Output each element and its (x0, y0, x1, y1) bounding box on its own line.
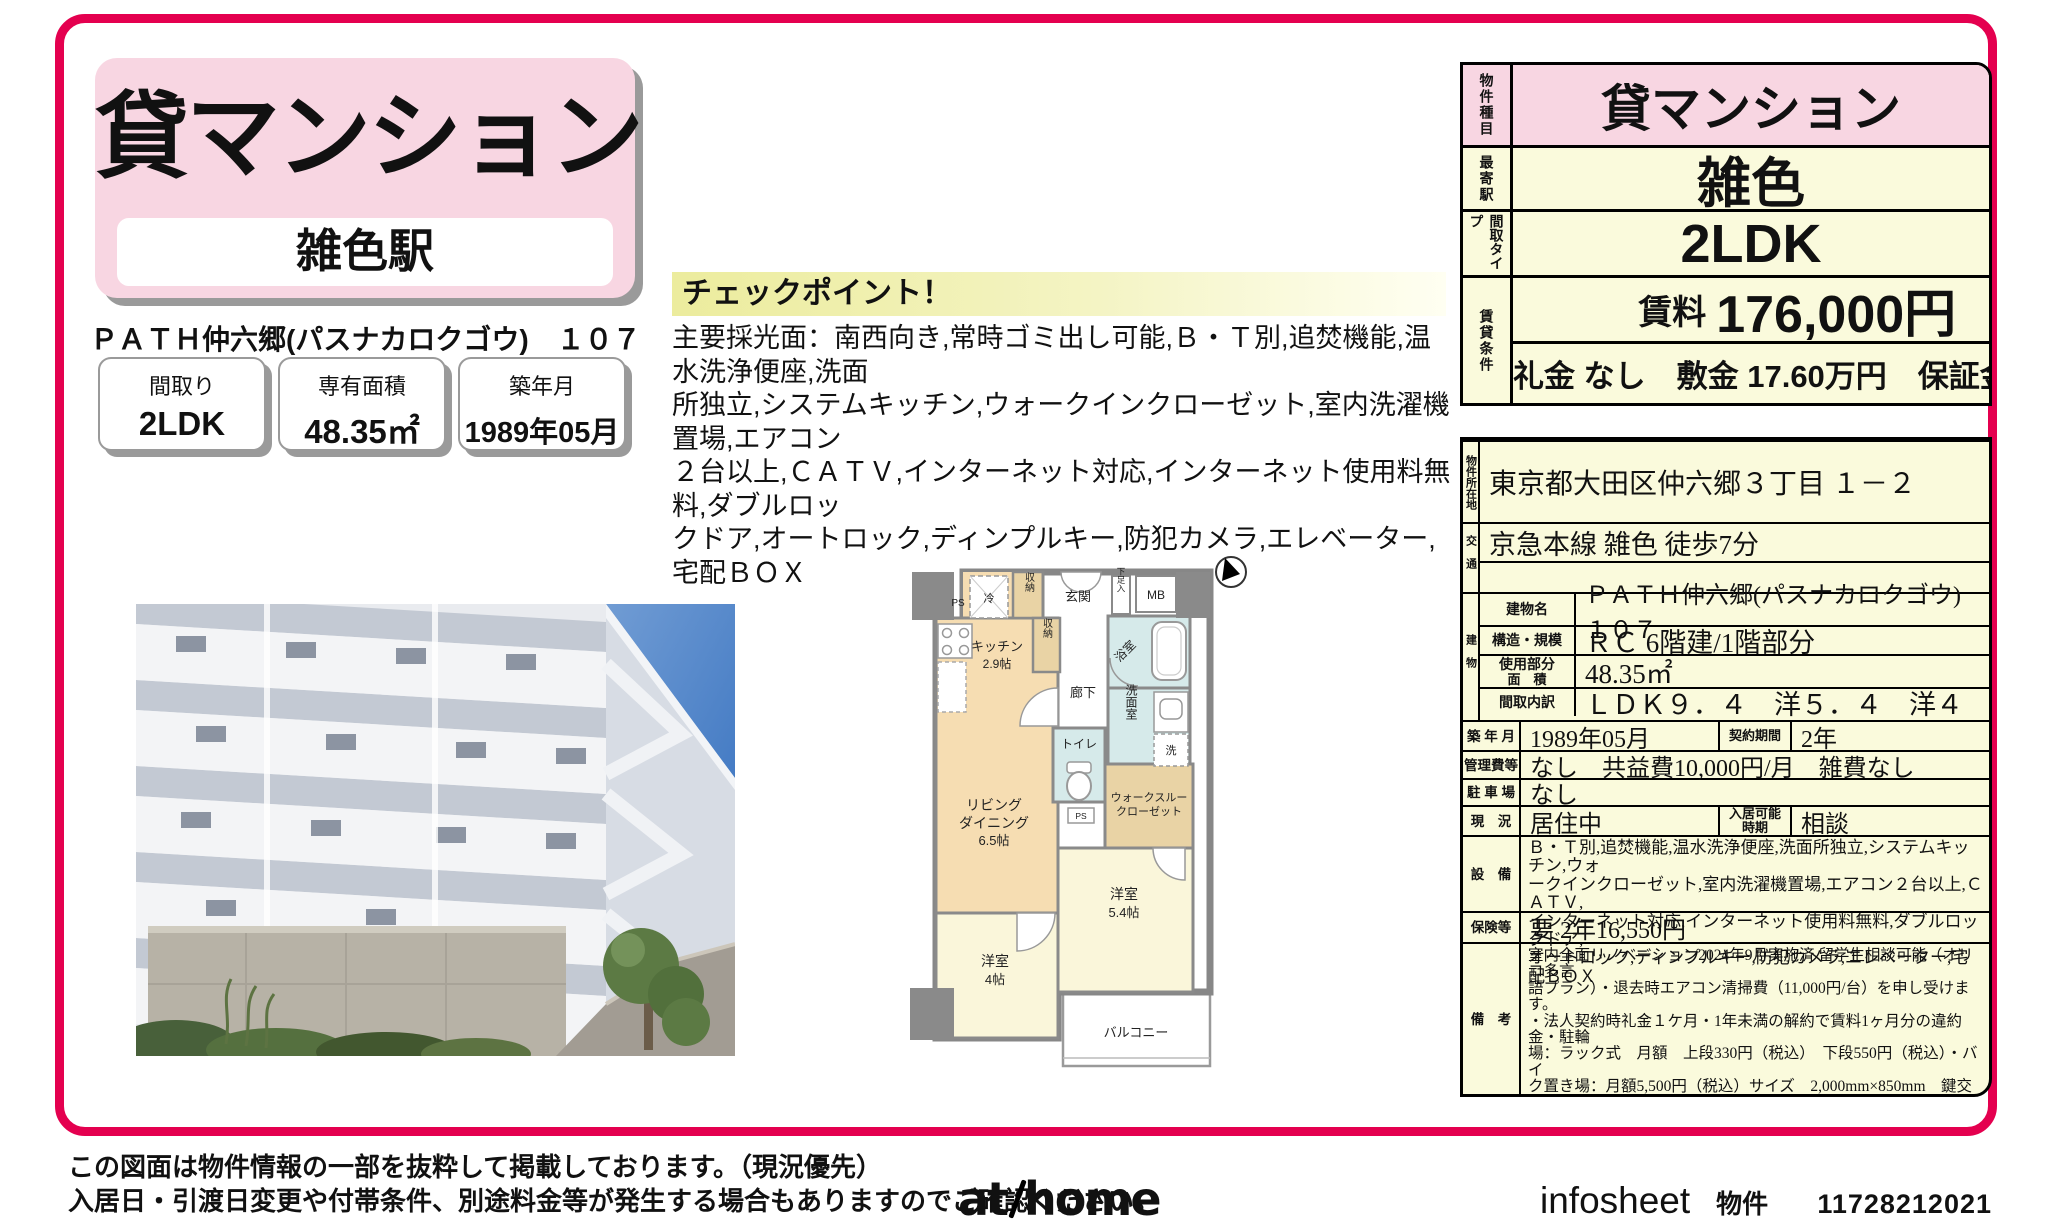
entrance-label: 玄関 (1065, 589, 1091, 604)
status-value: 居住中 (1521, 807, 1718, 835)
row-insurance: 保険等 要 2年16,550円 (1463, 911, 1989, 942)
category-title: 貸マンション (95, 58, 635, 216)
parking-value: なし (1521, 780, 1989, 805)
summary-value: 48.35㎡ (280, 405, 444, 453)
rent-terms: 礼金 なし 敷金 17.60万円 保証金 なし (1513, 344, 1992, 403)
notes-value: 室内全面リノベーション2024年9月実施済 留学生相談可能（オリコ多言 語プラン… (1521, 944, 1989, 1094)
spec-row-layout: 間取タイプ 2LDK (1463, 209, 1989, 275)
access-line-1: 京急本線 雑色 徒歩7分 (1480, 524, 1989, 563)
rent-amount: 176,000円 (1716, 272, 1956, 347)
address-value: 東京都大田区仲六郷３丁目 １－２ (1480, 442, 1989, 522)
summary-box-built: 築年月 1989年05月 (458, 357, 626, 451)
shoe-box-label: 下足入 (1116, 567, 1126, 593)
structure-value: ＲＣ 6階建/1階部分 (1576, 627, 1989, 654)
building-photo (136, 604, 735, 1056)
property-name-line: ＰＡＴＨ仲六郷(パスナカロクゴウ) １０７ (90, 318, 640, 358)
room-b-size-label: 4帖 (985, 972, 1005, 987)
balcony: バルコニー (1063, 992, 1210, 1066)
spec-row-category: 物件種目 貸マンション (1463, 65, 1989, 145)
insurance-label: 保険等 (1463, 913, 1521, 942)
movein-label: 入居可能 時期 (1718, 807, 1792, 835)
room-b-label: 洋室 (981, 953, 1009, 969)
summary-value: 1989年05月 (460, 409, 624, 451)
movein-value: 相談 (1792, 807, 1989, 835)
ps-bottom-label: PS (1075, 811, 1087, 821)
contract-value: 2年 (1792, 722, 1989, 750)
rent-line: 賃料 176,000円 (1513, 278, 1992, 344)
structure-label: 構造・規模 (1480, 627, 1576, 654)
ps-top-label: PS (951, 598, 965, 609)
row-equipment: 設 備 Ｂ・Ｔ別,追焚機能,温水洗浄便座,洗面所独立,システムキッチン,ウォ ー… (1463, 835, 1989, 911)
spec-table: 物件種目 貸マンション 最寄駅 雑色 間取タイプ 2LDK 賃貸条件 賃料 17… (1460, 62, 1992, 406)
station-name: 雑色駅 (117, 218, 613, 284)
contract-label: 契約期間 (1718, 722, 1792, 750)
living-size-label: 6.5帖 (978, 833, 1009, 848)
summary-label: 専有面積 (280, 369, 444, 401)
property-number-label: 物件番号 (1716, 1184, 1791, 1222)
mgmt-label: 管理費等 (1463, 752, 1521, 778)
toilet-icon (1067, 762, 1091, 800)
balcony-label: バルコニー (1104, 1025, 1169, 1040)
room-a-size-label: 5.4帖 (1108, 905, 1139, 920)
title-card: 貸マンション 雑色駅 (95, 58, 635, 298)
summary-value: 2LDK (100, 405, 264, 443)
kitchen-size-label: 2.9帖 (983, 656, 1012, 671)
living-label-1: リビング (966, 797, 1022, 813)
row-building: 建物 建物名 ＰＡＴＨ仲六郷(パスナカロクゴウ) １０７ 構造・規模 ＲＣ 6階… (1463, 592, 1989, 720)
summary-label: 築年月 (460, 369, 624, 401)
logo-at-text: at (958, 1172, 1007, 1222)
building-label: 建物 (1463, 594, 1480, 720)
closet-mid-label: 収納 (1041, 618, 1053, 639)
washer-label: 洗 (1166, 744, 1177, 757)
toilet-label: トイレ (1061, 737, 1097, 751)
checkpoint-header: チェックポイント！ (672, 272, 1446, 316)
kitchen-label: キッチン (971, 639, 1023, 654)
madori-label: 間取内訳 (1480, 689, 1576, 716)
infosheet-label: infosheet (1540, 1180, 1690, 1222)
fridge-label: 冷 (984, 592, 995, 605)
equipment-label: 設 備 (1463, 837, 1521, 911)
stove-icon (938, 624, 972, 658)
property-number-value: 11728212021 (1817, 1189, 1992, 1220)
summary-label: 間取り (100, 369, 264, 401)
building-row-madori: 間取内訳 ＬＤＫ９．４ 洋５．４ 洋４ (1480, 687, 1989, 716)
row-notes: 備 考 室内全面リノベーション2024年9月実施済 留学生相談可能（オリコ多言 … (1463, 942, 1989, 1094)
area-label-line1: 使用部分 (1499, 657, 1555, 672)
closet-top-label: 収納 (1023, 572, 1035, 593)
spec-row-rent: 賃貸条件 賃料 176,000円 礼金 なし 敷金 17.60万円 保証金 なし (1463, 275, 1989, 403)
hallway-label: 廊下 (1070, 685, 1096, 700)
mb-label: MB (1147, 588, 1165, 602)
bathtub-icon (1152, 622, 1186, 680)
infosheet-block: infosheet 物件番号 11728212021 (1540, 1180, 1992, 1222)
row-address: 物件所在地 東京都大田区仲六郷３丁目 １－２ (1463, 440, 1989, 522)
spec-row-station: 最寄駅 雑色 (1463, 145, 1989, 209)
summary-box-area: 専有面積 48.35㎡ (278, 357, 446, 451)
movein-label-line2: 時期 (1742, 821, 1768, 835)
row-status: 現 況 居住中 入居可能 時期 相談 (1463, 805, 1989, 835)
parking-label: 駐 車 場 (1463, 780, 1521, 805)
address-label: 物件所在地 (1463, 442, 1480, 522)
spec-label-category: 物件種目 (1463, 65, 1513, 145)
built-value: 1989年05月 (1521, 722, 1718, 750)
wtc-label-2: クローゼット (1116, 805, 1182, 818)
mgmt-value: なし 共益費10,000円/月 雑費なし (1521, 752, 1989, 778)
rent-label: 賃料 (1638, 285, 1706, 334)
madori-value: ＬＤＫ９．４ 洋５．４ 洋４ (1576, 689, 1989, 716)
area-label-line2: 面 積 (1507, 672, 1546, 687)
station-box: 雑色駅 (117, 218, 613, 286)
movein-label-line1: 入居可能 (1729, 807, 1781, 821)
row-parking: 駐 車 場 なし (1463, 778, 1989, 805)
spec-label-layout: 間取タイプ (1463, 212, 1513, 275)
built-label: 築 年 月 (1463, 722, 1521, 750)
access-label: 交通 (1463, 524, 1480, 592)
notes-label: 備 考 (1463, 944, 1521, 1094)
insurance-value: 要 2年16,550円 (1521, 913, 1989, 942)
flyer-page: 貸マンション 雑色駅 ＰＡＴＨ仲六郷(パスナカロクゴウ) １０７ 間取り 2LD… (0, 0, 2056, 1222)
living-label-2: ダイニング (959, 815, 1029, 831)
status-label: 現 況 (1463, 807, 1521, 835)
detail-table: 物件所在地 東京都大田区仲六郷３丁目 １－２ 交通 京急本線 雑色 徒歩7分 建… (1460, 437, 1992, 1097)
spec-value-layout: 2LDK (1513, 212, 1989, 275)
washroom-label: 洗面室 (1124, 684, 1138, 720)
athome-logo: at home (958, 1172, 1160, 1222)
spec-label-station: 最寄駅 (1463, 148, 1513, 209)
room-a-label: 洋室 (1110, 886, 1138, 902)
sink-icon (1154, 692, 1188, 732)
building-row-structure: 構造・規模 ＲＣ 6階建/1階部分 (1480, 625, 1989, 654)
building-name-label: 建物名 (1480, 594, 1576, 625)
summary-box-layout: 間取り 2LDK (98, 357, 266, 451)
counter-icon (938, 662, 966, 712)
area-label: 使用部分 面 積 (1480, 656, 1576, 687)
row-mgmt: 管理費等 なし 共益費10,000円/月 雑費なし (1463, 750, 1989, 778)
spec-label-rent: 賃貸条件 (1463, 278, 1513, 403)
floorplan: バルコニー (898, 550, 1263, 1085)
spec-value-category: 貸マンション (1513, 65, 1989, 145)
wtc-label-1: ウォークスルー (1111, 791, 1188, 804)
compass-icon (1216, 557, 1246, 587)
row-built: 築 年 月 1989年05月 契約期間 2年 (1463, 720, 1989, 750)
spec-value-station: 雑色 (1513, 148, 1989, 209)
property-number-group: 物件番号 11728212021 (1716, 1184, 1992, 1222)
logo-home-text: home (1024, 1172, 1159, 1222)
equipment-value: Ｂ・Ｔ別,追焚機能,温水洗浄便座,洗面所独立,システムキッチン,ウォ ークインク… (1521, 837, 1989, 911)
